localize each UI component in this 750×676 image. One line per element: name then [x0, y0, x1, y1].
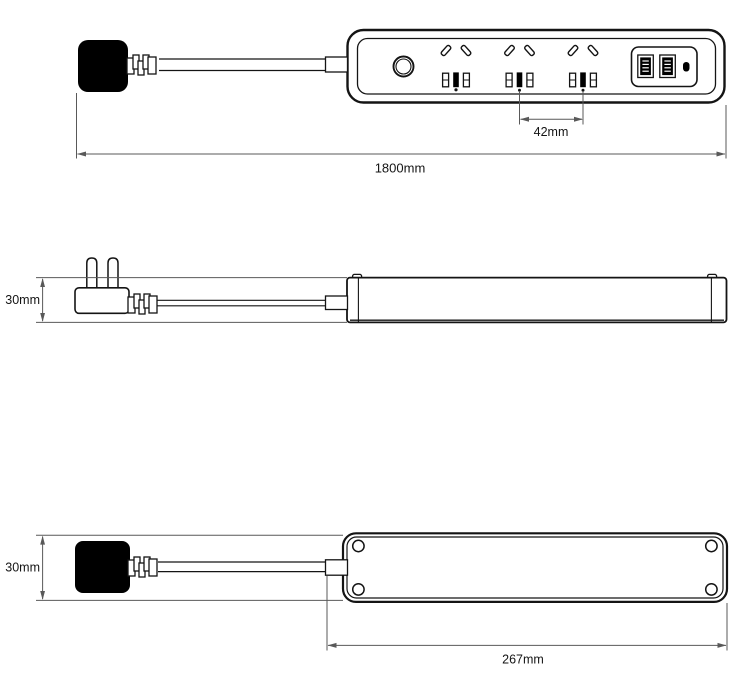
- plug-side: [75, 288, 129, 314]
- dim-label-width-bottom: 30mm: [5, 561, 40, 575]
- strain-relief-side: [128, 294, 157, 314]
- usb-a-port-1: [638, 55, 654, 78]
- dimension-width-bottom: [40, 536, 45, 600]
- cord-entry-bottom: [326, 560, 348, 575]
- screw-hole-bottom-left: [353, 584, 364, 595]
- power-cord-top: [159, 59, 327, 71]
- plug-top: [78, 40, 128, 92]
- side-view: 30mm: [5, 258, 726, 322]
- plug-bottom: [75, 541, 130, 593]
- dimension-height-side: [40, 278, 45, 322]
- power-cord-side: [157, 300, 327, 306]
- technical-drawing-page: 42mm 1800mm 30mm: [0, 0, 750, 676]
- strip-body-bottom: [343, 533, 727, 602]
- indicator-dot-outlet-3: [582, 89, 585, 92]
- dim-label-total-length: 1800mm: [375, 161, 426, 176]
- cord-entry-side: [326, 296, 348, 310]
- screw-hole-top-right: [706, 540, 717, 551]
- usb-a-port-2: [660, 55, 676, 78]
- indicator-dot-outlet-1: [454, 88, 457, 91]
- screw-hole-bottom-right: [706, 584, 717, 595]
- cord-entry-top: [326, 57, 348, 72]
- strain-relief-bottom: [128, 557, 157, 577]
- dim-label-body-length: 267mm: [502, 653, 544, 667]
- bottom-view: 30mm 267mm: [5, 533, 727, 666]
- usb-panel: [632, 47, 698, 87]
- strain-relief-top: [127, 55, 156, 75]
- power-cord-bottom: [158, 562, 327, 572]
- indicator-dot-outlet-2: [518, 89, 521, 92]
- strip-body-side: [347, 274, 727, 322]
- power-strip-technical-drawing: 42mm 1800mm 30mm: [0, 0, 750, 676]
- screw-hole-top-left: [353, 540, 364, 551]
- usb-c-port: [683, 62, 690, 72]
- dim-label-height-side: 30mm: [5, 293, 40, 307]
- plug-prong-1: [87, 258, 97, 289]
- power-button: [394, 57, 414, 77]
- dim-label-outlet-spacing: 42mm: [534, 125, 569, 139]
- plug-prong-2: [108, 258, 118, 289]
- top-view: 42mm 1800mm: [77, 30, 727, 176]
